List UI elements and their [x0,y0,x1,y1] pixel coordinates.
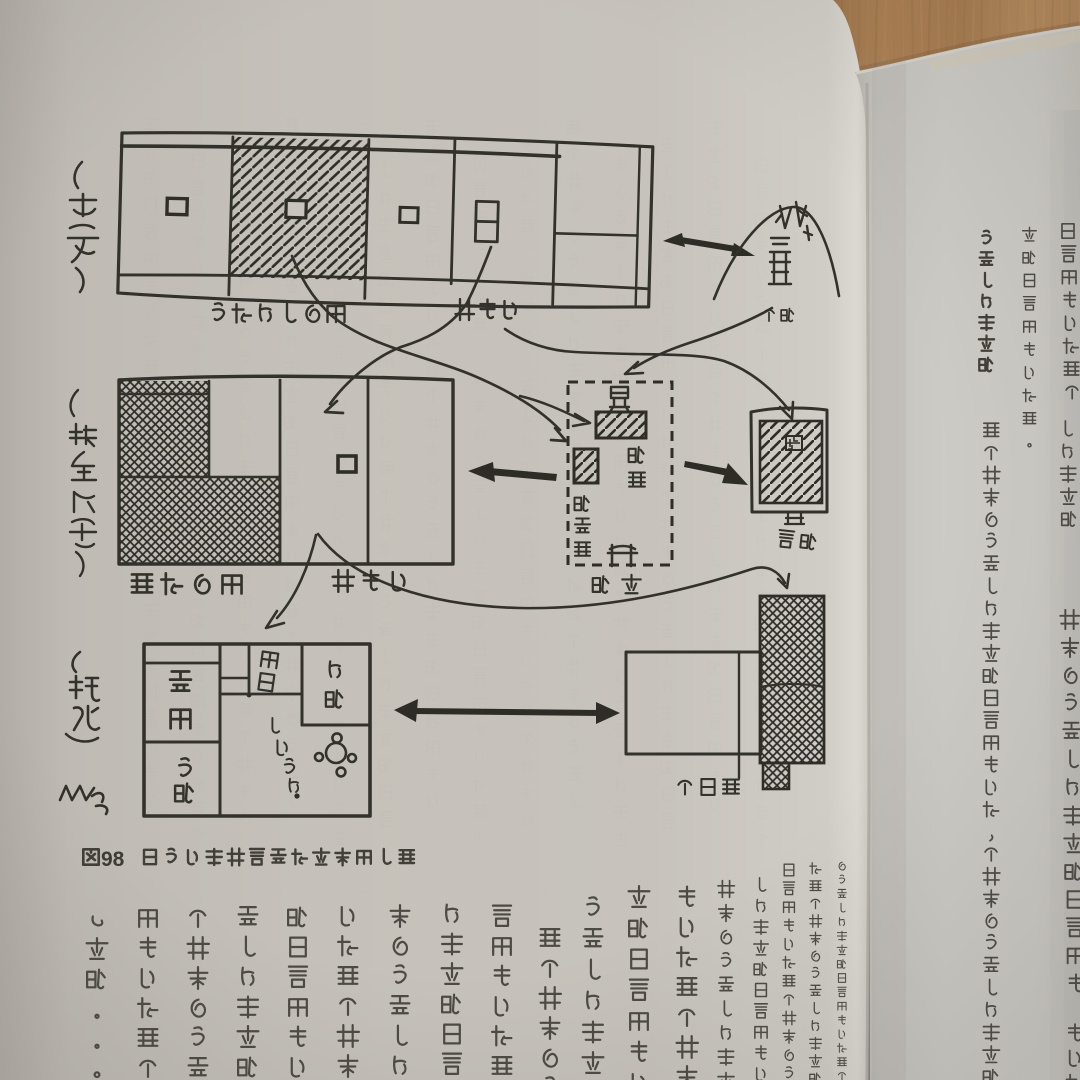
svg-text:98: 98 [101,848,125,871]
